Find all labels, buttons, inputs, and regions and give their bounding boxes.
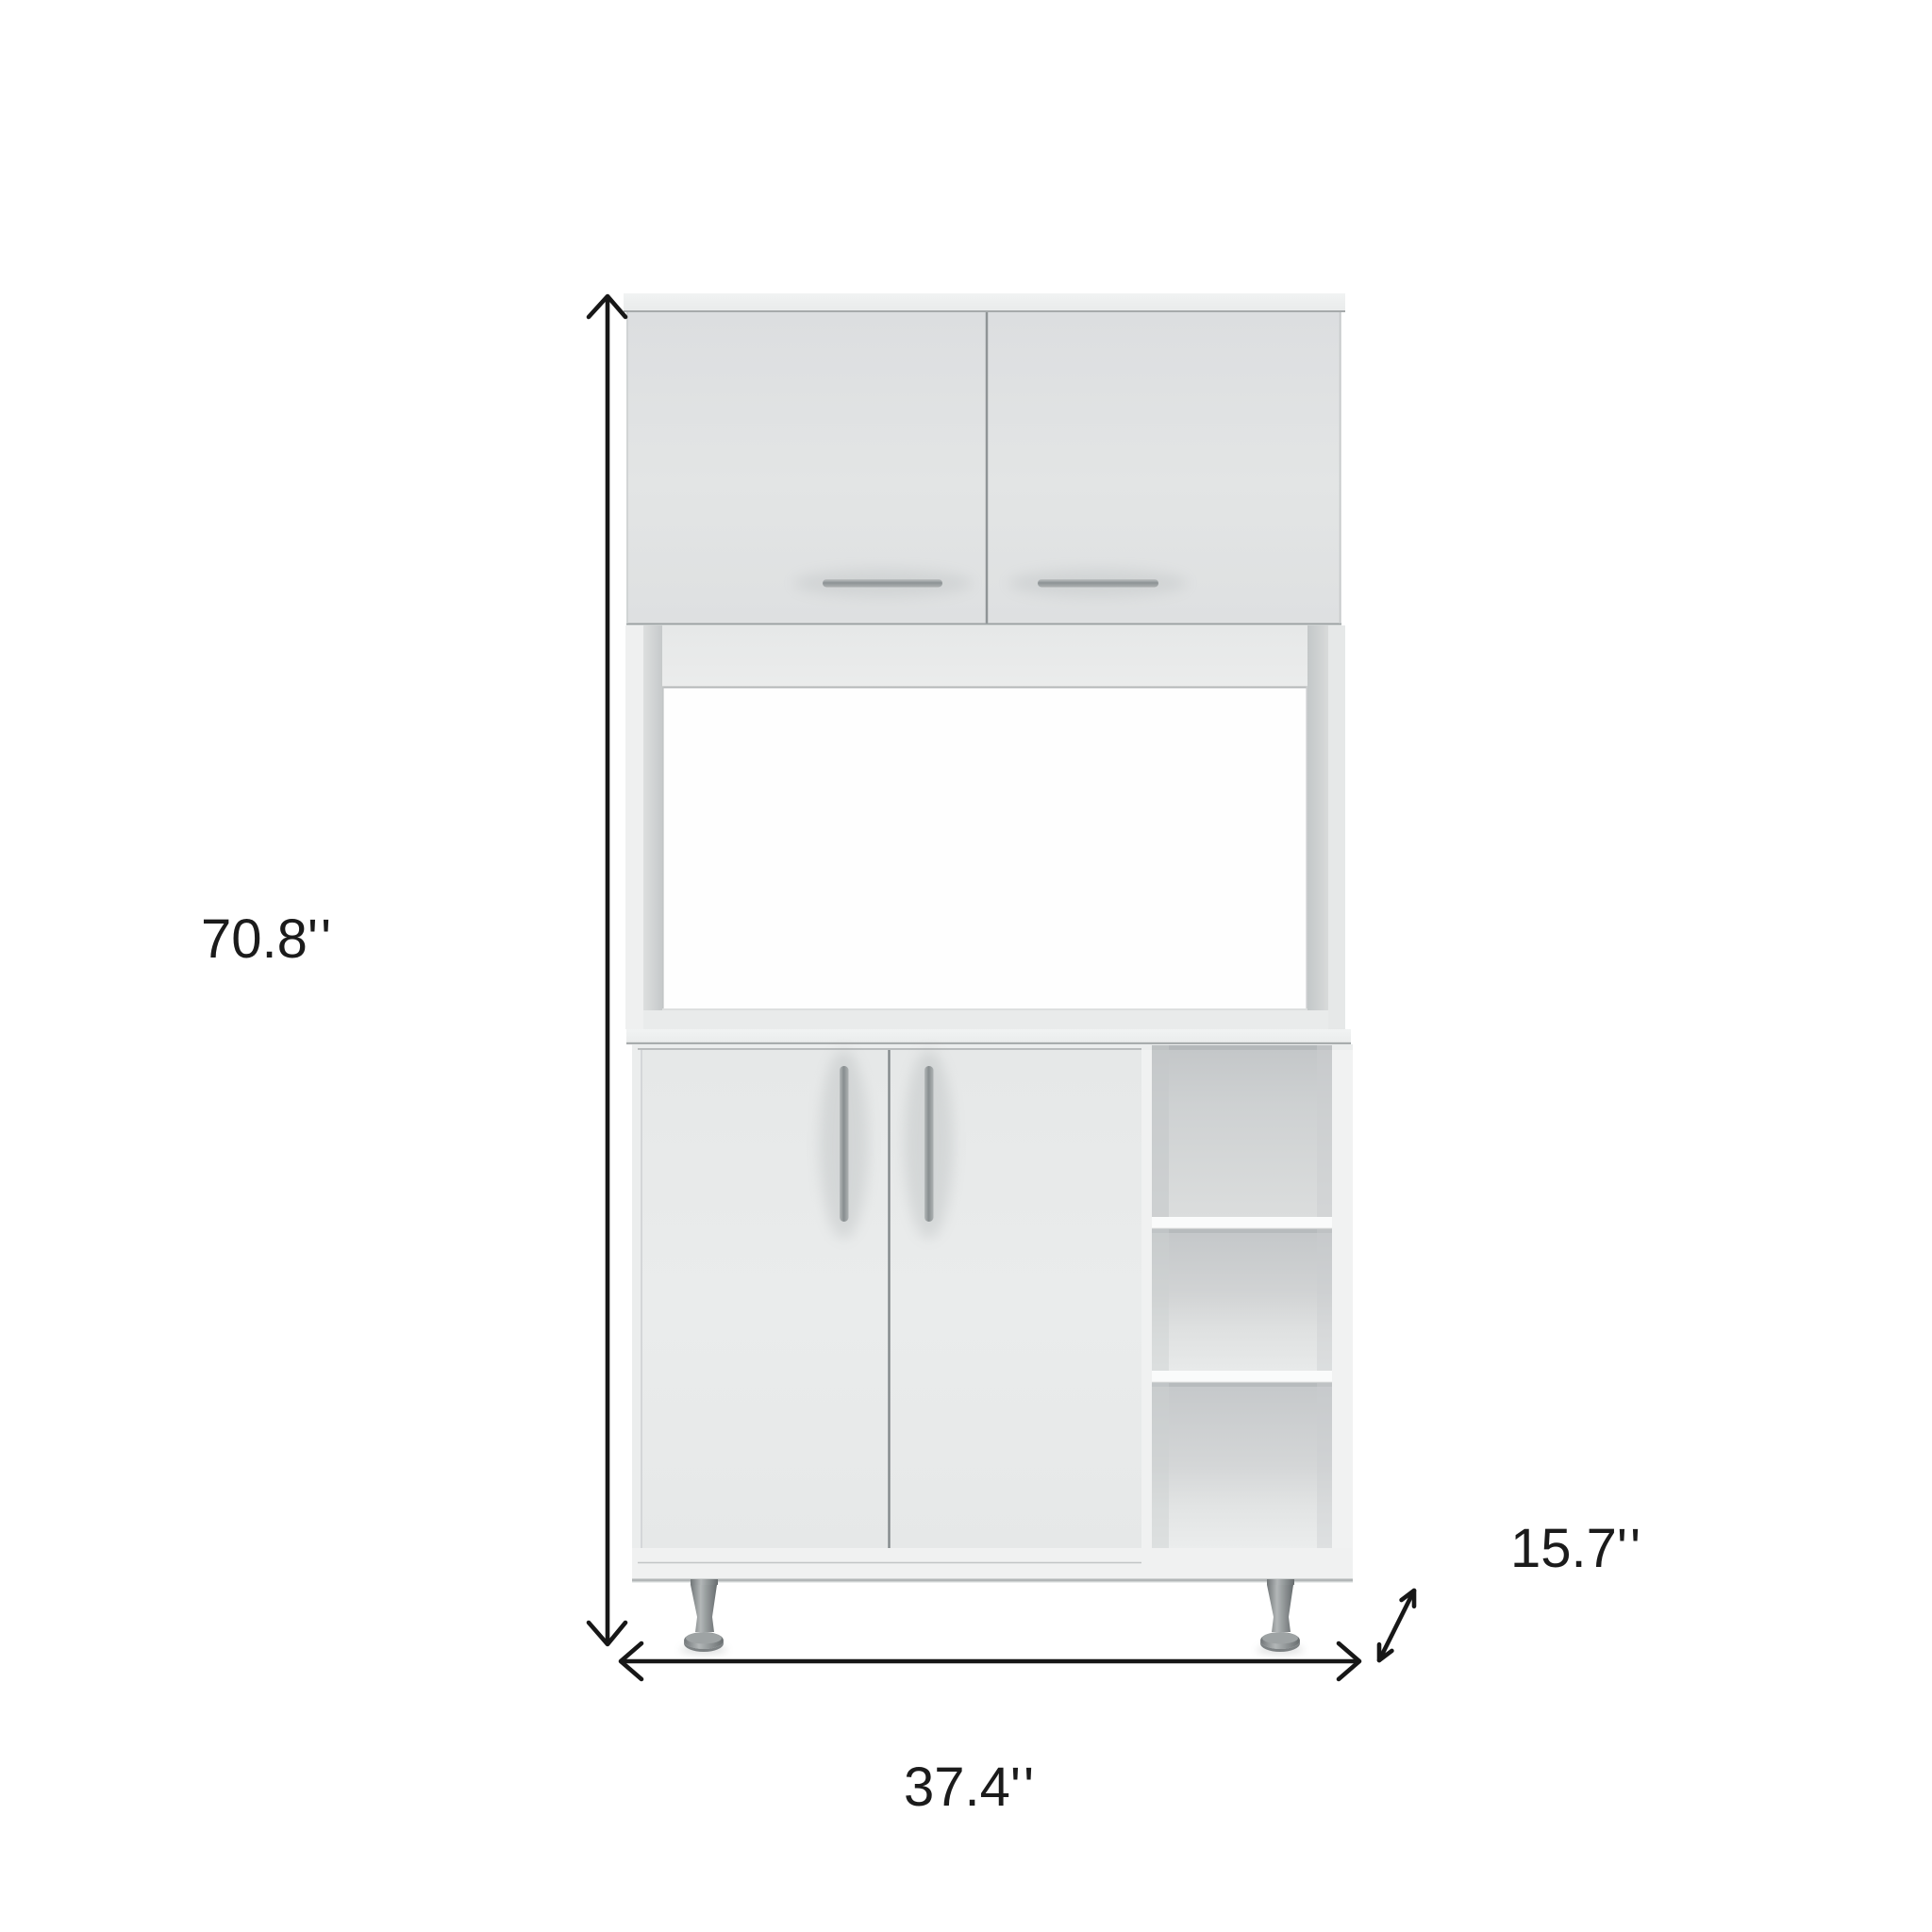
svg-text:37.4'': 37.4'': [904, 1757, 1034, 1818]
svg-text:70.8'': 70.8'': [201, 908, 331, 970]
svg-text:15.7'': 15.7'': [1510, 1518, 1641, 1579]
